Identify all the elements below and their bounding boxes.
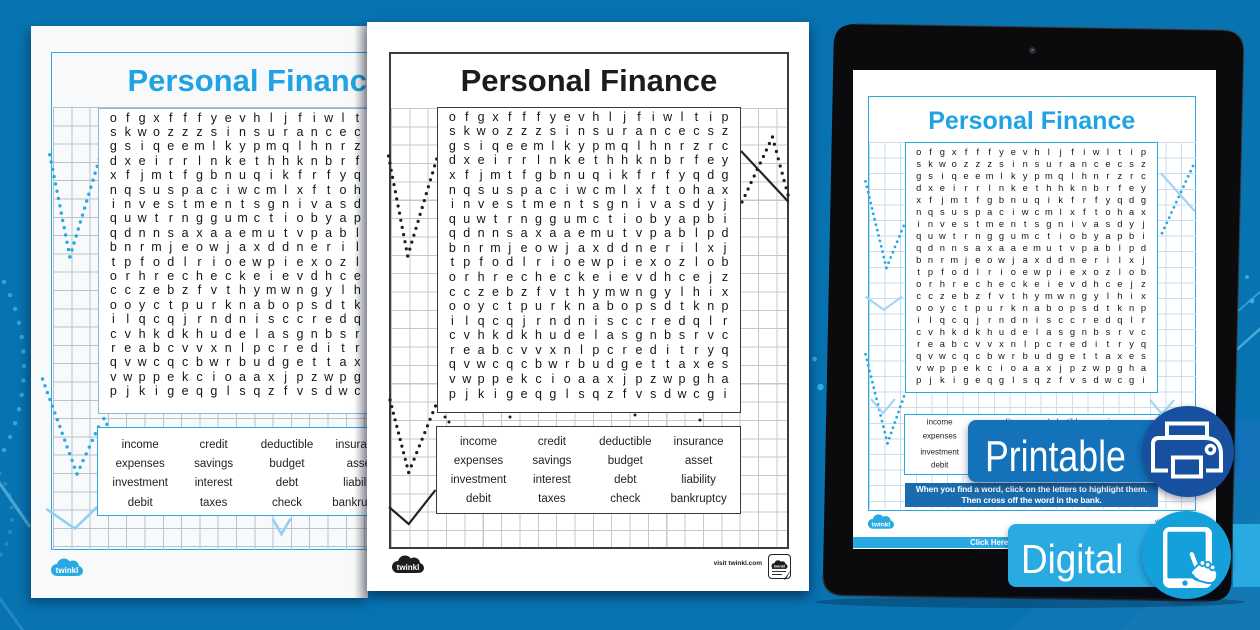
svg-text:twinkl: twinkl (871, 521, 890, 528)
